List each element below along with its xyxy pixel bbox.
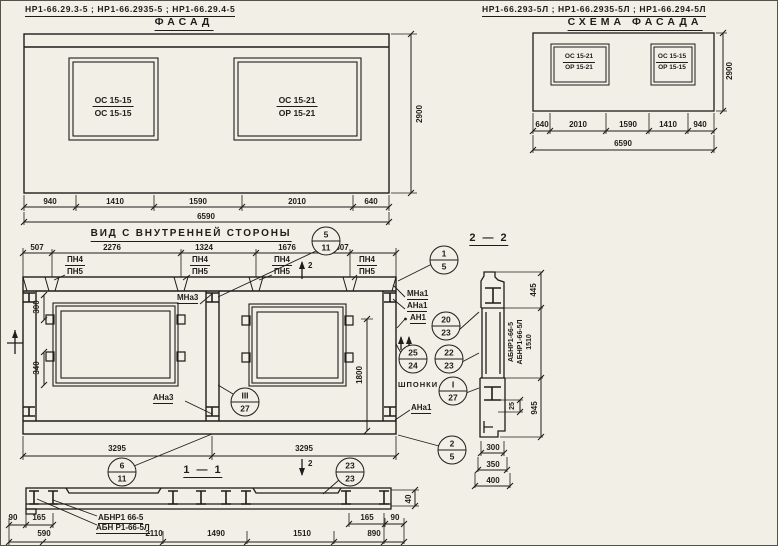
pn-mark: ПН4 ПН5	[357, 255, 377, 276]
dim-165-right: 165	[360, 514, 373, 522]
dim-label: 1410	[659, 121, 677, 129]
facade-window-left-mark: ОС 15-15 ОС 15-15	[93, 95, 134, 118]
schema-window-left-mark: ОС 15-21 ОР 15-21	[563, 53, 595, 72]
schema-window-right-mark: ОС 15-15 ОР 15-15	[656, 53, 688, 72]
dim-label: 940	[43, 198, 56, 206]
schema-ticks	[530, 30, 726, 153]
cut-2-bottom-label: 2	[308, 460, 312, 468]
dim-90-left: 90	[9, 514, 18, 522]
cut-marker-lines	[7, 262, 409, 475]
callout-bottom: 5	[439, 451, 466, 464]
label-mna1: МНа1	[407, 290, 428, 300]
dim-2110: 2110	[145, 530, 162, 538]
dim-945: 945	[531, 401, 539, 414]
callout-top: 5	[313, 228, 340, 242]
dim-label: 640	[364, 198, 377, 206]
label-ana1: АНа1	[407, 302, 427, 312]
dim-label: 1676	[278, 244, 296, 252]
callout-top: 25	[400, 346, 427, 360]
dim-label: 2010	[569, 121, 587, 129]
dim-1510-vert: 1510	[526, 334, 534, 350]
dim-label: 1590	[189, 198, 207, 206]
dim-890: 890	[367, 530, 380, 538]
s22-middle	[482, 308, 504, 378]
window-mark-top: ОС 15-15	[656, 53, 688, 63]
label-ana3: АНа3	[153, 394, 173, 404]
schema-panel	[533, 33, 714, 111]
facade-title: ФАСАД	[155, 16, 214, 31]
cut-1-right-arrow	[406, 336, 412, 344]
dim-300-bottom: 300	[486, 444, 499, 452]
dim-400-bottom: 400	[486, 477, 499, 485]
dim-90-right: 90	[391, 514, 400, 522]
pn-top: ПН4	[357, 255, 377, 266]
callout-bottom: 5	[431, 261, 458, 274]
view-title: ВИД С ВНУТРЕННЕЙ СТОРОНЫ	[91, 228, 292, 242]
schema-title: СХЕМА ФАСАДА	[568, 16, 703, 31]
label-an1: АН1	[410, 314, 426, 324]
view-top-notches	[23, 277, 396, 291]
callout-top: 22	[436, 346, 463, 360]
pn-mark: ПН4 ПН5	[65, 255, 85, 276]
dim-label: 2010	[288, 198, 306, 206]
view-outline	[23, 277, 396, 434]
callout-top: 20	[433, 313, 460, 327]
dim-label: 1324	[195, 244, 213, 252]
callout-bottom: 24	[400, 360, 427, 373]
callout-5-11: 5 11	[312, 227, 341, 256]
callout-20-23: 20 23	[432, 312, 461, 341]
callout-bottom: 11	[109, 473, 136, 486]
dim-25: 25	[509, 402, 517, 410]
view-panel	[23, 277, 396, 434]
pn-top: ПН4	[190, 255, 210, 266]
callout-top: III	[232, 389, 259, 403]
facade-window-right-mark: ОС 15-21 ОР 15-21	[277, 95, 318, 118]
label-ana1-bottom: АНа1	[411, 404, 431, 414]
pn-top: ПН4	[65, 255, 85, 266]
callout-III-27: III 27	[231, 388, 260, 417]
callout-6-11: 6 11	[108, 458, 137, 487]
pn-top: ПН4	[272, 255, 292, 266]
dim-label: 507	[30, 244, 43, 252]
dim-445: 445	[530, 283, 538, 296]
label-mna3: МНа3	[177, 294, 198, 304]
callout-top: 2	[439, 437, 466, 451]
dim-3295-right: 3295	[295, 445, 313, 453]
window-frame	[249, 304, 346, 386]
callout-bottom: 27	[440, 392, 467, 405]
window-mark-top: ОС 15-21	[563, 53, 595, 63]
pn-bottom: ПН5	[65, 266, 85, 276]
cut-1-arrow	[12, 330, 18, 338]
dim-label: 1590	[619, 121, 637, 129]
dim-40: 40	[405, 495, 413, 504]
callout-bottom: 23	[433, 327, 460, 340]
section-2-2-title: 2 — 2	[469, 232, 508, 246]
dim-1490: 1490	[207, 530, 225, 538]
dim-total: 6590	[614, 140, 632, 148]
dim-350-bottom: 350	[486, 461, 499, 469]
window-mark-bottom: ОР 15-21	[563, 63, 595, 72]
label-abnr1-66-5-vert: АБНР1-66-5	[508, 322, 516, 362]
pn-bottom: ПН5	[272, 266, 292, 276]
callout-I-27: I 27	[439, 377, 468, 406]
window-frame	[61, 311, 170, 378]
section-1-1-title: 1 — 1	[183, 464, 222, 478]
label-abnr1-66-5l: АБН Р1-66-5Л	[96, 524, 150, 534]
dim-height: 2900	[726, 62, 734, 80]
pn-mark: ПН4 ПН5	[190, 255, 210, 276]
strip-body	[26, 488, 391, 509]
dim-total: 6590	[197, 213, 215, 221]
callout-22-23: 22 23	[435, 345, 464, 374]
callout-bottom: 23	[436, 360, 463, 373]
window-mark-bottom: ОР 15-15	[656, 63, 688, 72]
dim-1510: 1510	[293, 530, 311, 538]
schema-extension-lines	[533, 33, 727, 153]
drawing-sheet: НР1-66.29.3-5 ; НР1-66.2935-5 ; НР1-66.2…	[0, 0, 778, 546]
dim-300: 300	[33, 300, 41, 313]
label-shponki: ШПОНКИ	[398, 381, 438, 389]
window-mark-bottom: ОР 15-21	[277, 107, 318, 118]
window-frame	[53, 303, 178, 386]
pn-mark: ПН4 ПН5	[272, 255, 292, 276]
callout-top: I	[440, 378, 467, 392]
dim-3295-left: 3295	[108, 445, 126, 453]
window-fixing-tabs	[46, 315, 353, 362]
dim-165-left: 165	[32, 514, 45, 522]
dim-height: 2900	[416, 105, 424, 123]
window-mark-top: ОС 15-21	[277, 95, 318, 107]
view-extension-lines	[23, 248, 396, 460]
callout-top: 23	[337, 459, 364, 473]
dim-340: 340	[33, 361, 41, 374]
window-frame	[257, 312, 338, 378]
dim-590: 590	[37, 530, 50, 538]
view-dimension-lines	[23, 253, 396, 456]
window-mark-top: ОС 15-15	[93, 95, 134, 107]
callout-1-5: 1 5	[430, 246, 459, 275]
cut-2-bottom-arrow	[299, 468, 305, 476]
s22-extension-lines	[475, 272, 543, 488]
callout-bottom: 27	[232, 403, 259, 416]
cut-2-top-label: 2	[308, 262, 312, 270]
callout-bottom: 23	[337, 473, 364, 486]
s22-ticks	[472, 270, 544, 489]
an1-leader-dot	[404, 318, 407, 321]
callout-2-5: 2 5	[438, 436, 467, 465]
callout-bottom: 11	[313, 242, 340, 255]
view-windows	[46, 303, 353, 386]
s11-leader-lines	[37, 499, 97, 525]
pn-bottom: ПН5	[190, 266, 210, 276]
callout-top: 1	[431, 247, 458, 261]
callout-23-23: 23 23	[336, 458, 365, 487]
view-ticks	[20, 250, 399, 459]
dim-1800: 1800	[356, 366, 364, 384]
facade-ticks	[21, 31, 414, 225]
schema-outline	[533, 33, 714, 111]
window-frame	[252, 307, 343, 383]
s22-dimension-lines	[475, 273, 541, 486]
cut-2-top-arrow	[299, 261, 305, 269]
window-frame	[56, 306, 175, 383]
window-mark-bottom: ОС 15-15	[93, 107, 134, 118]
callout-top: 6	[109, 459, 136, 473]
pn-bottom: ПН5	[357, 266, 377, 276]
dim-label: 1410	[106, 198, 124, 206]
facade-extension-lines	[24, 34, 417, 225]
cut-1-right-arrow	[398, 336, 404, 344]
dim-label: 2276	[103, 244, 121, 252]
dim-label: 940	[693, 121, 706, 129]
dim-label: 640	[535, 121, 548, 129]
callout-25-24: 25 24	[399, 345, 428, 374]
label-abnr1-66-5l-vert: АБНР1-66-5Л	[517, 320, 525, 365]
